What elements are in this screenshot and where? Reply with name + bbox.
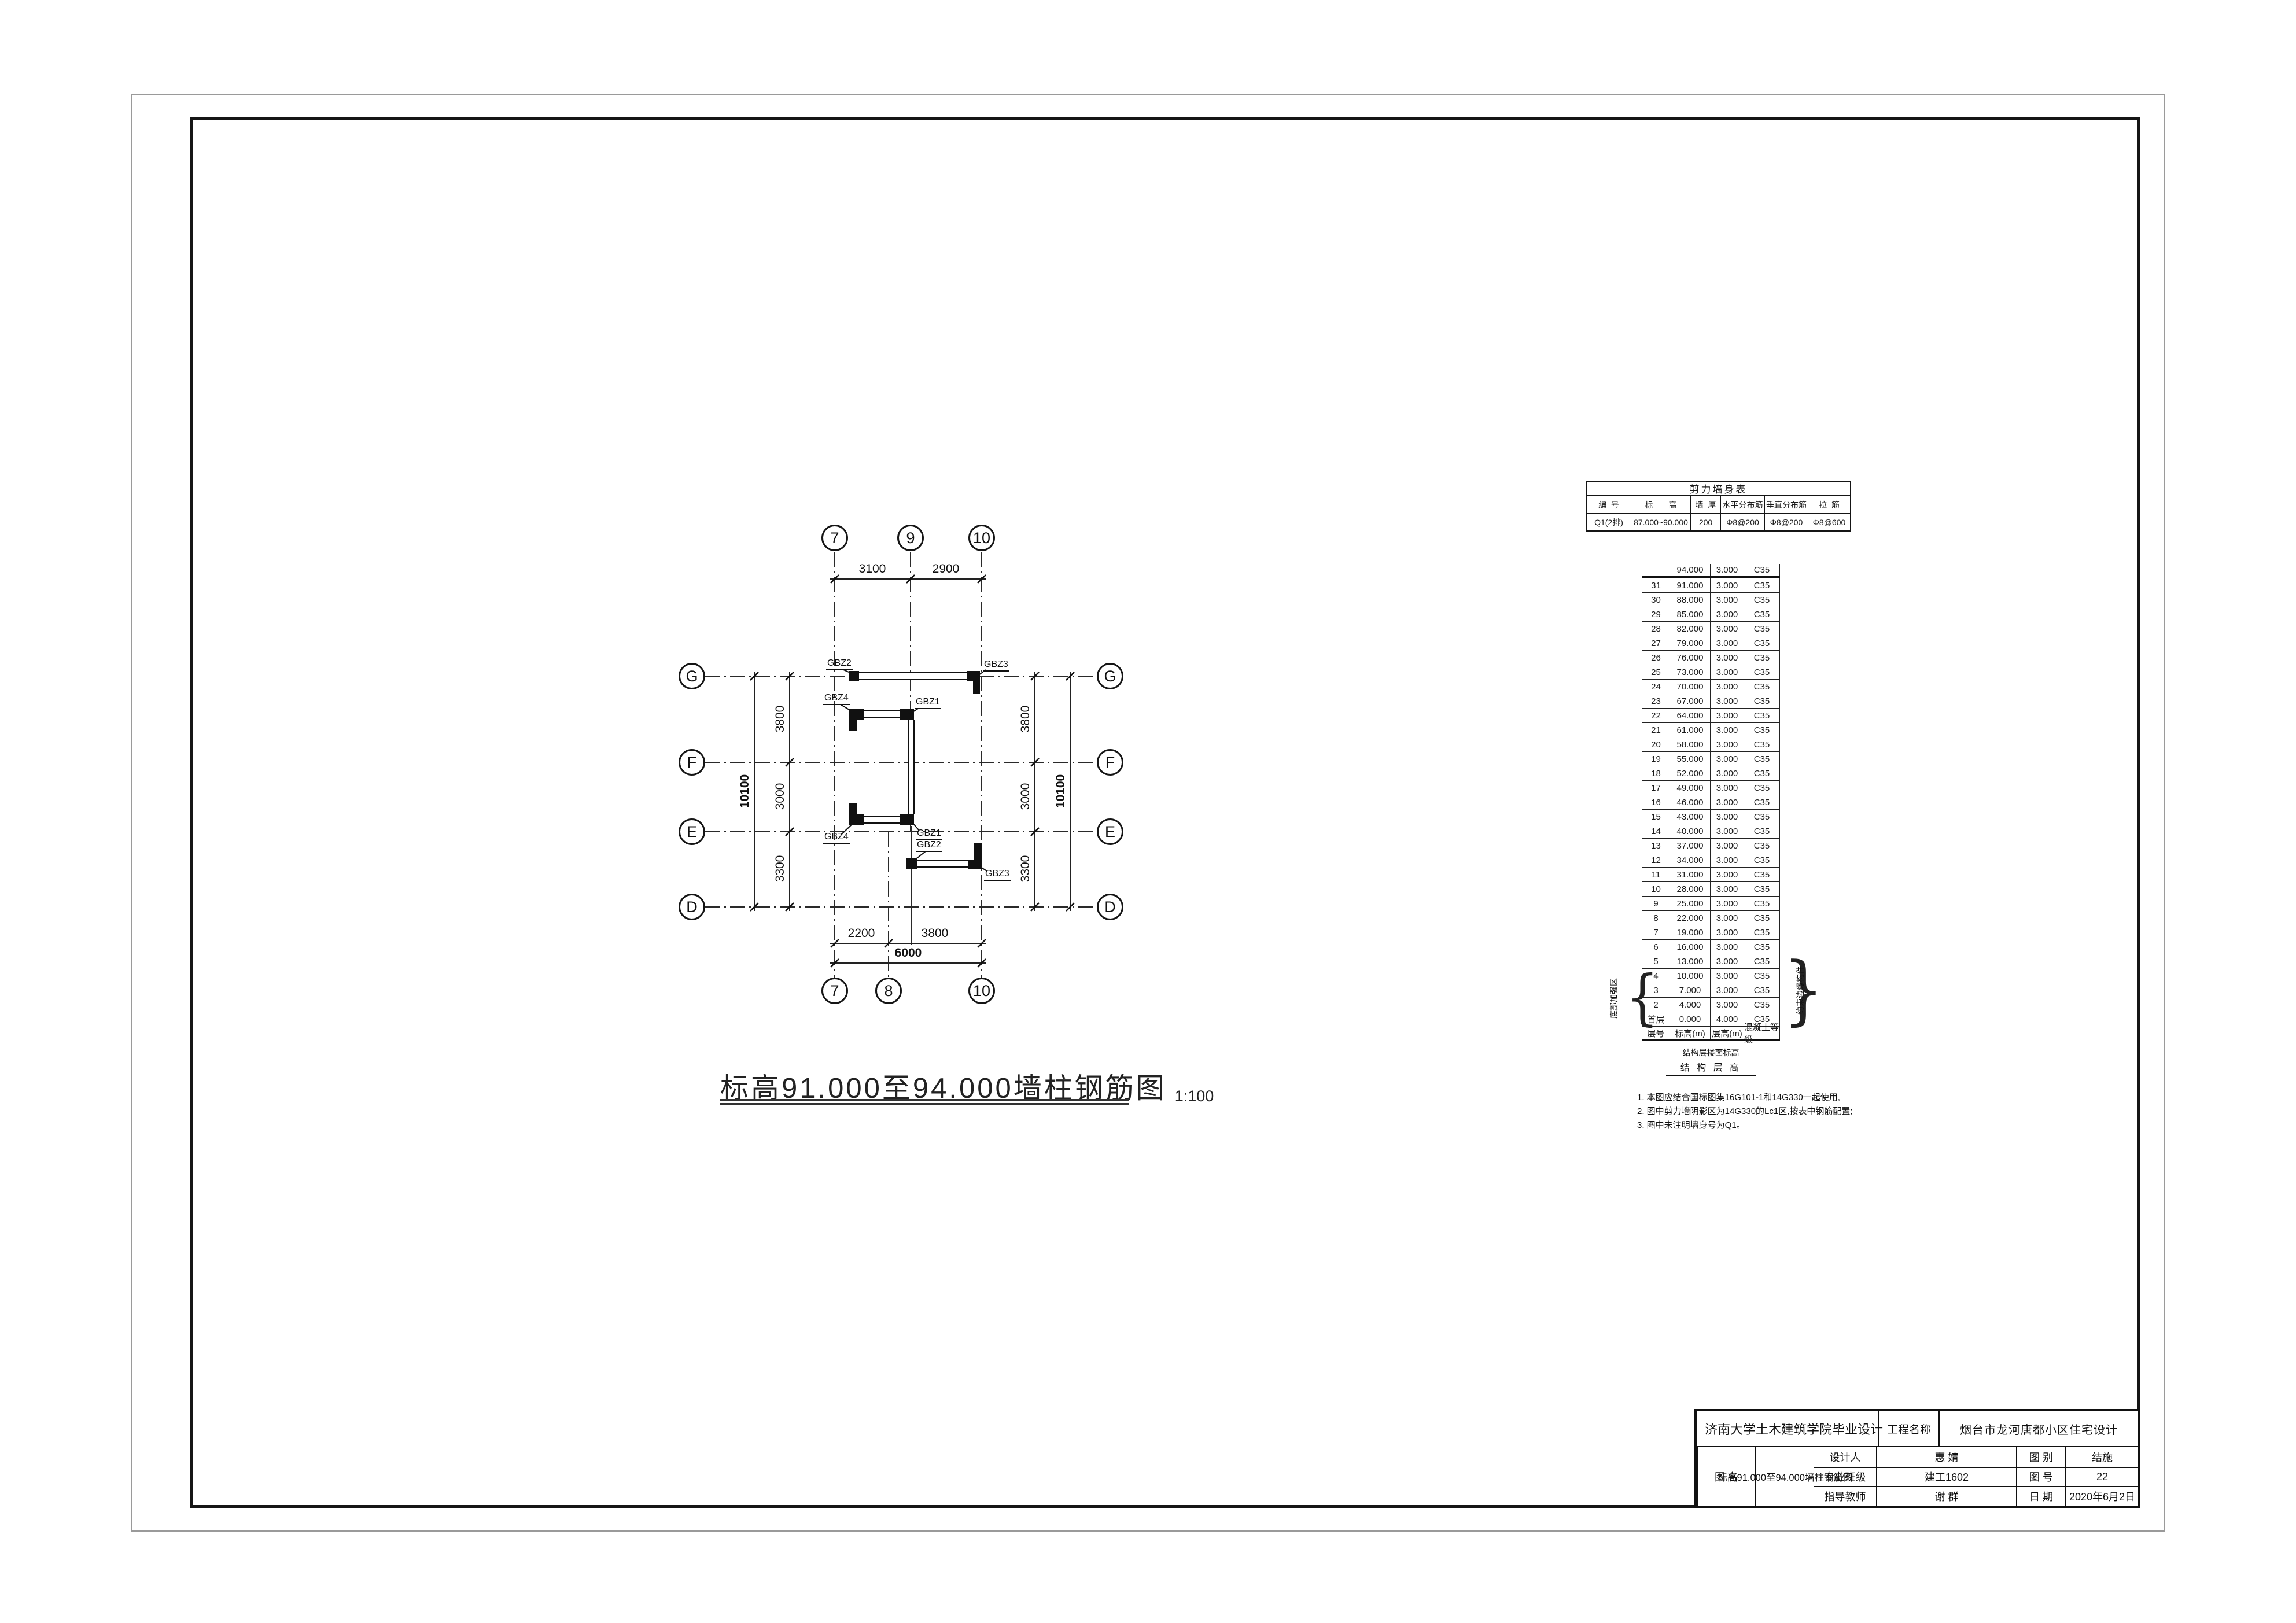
plan-title-underline-2 (720, 1103, 1129, 1105)
grid-bubble-label: 9 (906, 529, 915, 547)
floor-table-cell: C35 (1744, 969, 1780, 983)
floor-table-cell: C35 (1744, 810, 1780, 824)
advisor-label: 指导教师 (1814, 1486, 1876, 1506)
grid-bubble-label: F (1105, 754, 1115, 772)
shear-data-cell: 200 (1691, 514, 1721, 530)
advisor-value: 谢 群 (1876, 1486, 2016, 1506)
floor-table-cell: 61.000 (1670, 723, 1711, 737)
floor-table-cell: 88.000 (1670, 593, 1711, 607)
floor-table-cell: 3.000 (1711, 925, 1744, 939)
date-label: 日 期 (2016, 1486, 2065, 1506)
grid-bubble-label: F (687, 754, 697, 772)
floor-table-cell: C35 (1744, 622, 1780, 636)
floor-table-cell: C35 (1744, 781, 1780, 795)
label-confined-boundary: 约束边缘构件 (1794, 966, 1806, 1015)
grid-line-F (705, 762, 1097, 763)
shear-data-cell: Φ8@200 (1721, 514, 1765, 530)
floor-table-cell: C35 (1744, 795, 1780, 809)
shear-data-cell: Φ8@200 (1765, 514, 1808, 530)
floor-table-cell: 14 (1642, 824, 1670, 838)
floor-table-cell: 3.000 (1711, 983, 1744, 997)
floor-table-cell: 3.000 (1711, 824, 1744, 838)
shear-wall-core-top (864, 710, 900, 718)
floor-table-row: 2058.0003.000C35 (1642, 737, 1780, 752)
floor-elevation-table: 94.0003.000C353191.0003.000C353088.0003.… (1642, 564, 1780, 1041)
floor-table-cell: 10 (1642, 882, 1670, 896)
floor-table-cell: 3.000 (1711, 954, 1744, 968)
floor-table-cell: C35 (1744, 665, 1780, 679)
floor-table-cell: 7 (1642, 925, 1670, 939)
floor-table-cell: 7.000 (1670, 983, 1711, 997)
shear-header-cell: 编 号 (1587, 496, 1631, 513)
floor-table-cell: 25 (1642, 665, 1670, 679)
note-line-3: 3. 图中未注明墙身号为Q1。 (1637, 1119, 1853, 1133)
floor-table-row: 2985.0003.000C35 (1642, 607, 1780, 622)
dim-bottom-2: 3800 (922, 927, 949, 940)
label-gbz2-top: GBZ2 (826, 658, 853, 670)
floor-table-cell: 43.000 (1670, 810, 1711, 824)
floor-table-cell: 3.000 (1711, 607, 1744, 621)
wall-column-gbz3-bottom-v (974, 843, 982, 860)
dim-right-3: 3300 (1019, 855, 1033, 883)
shear-wall-core-vertical (908, 720, 915, 814)
floor-table-cell: 3.000 (1711, 636, 1744, 650)
dim-bottom-1: 2200 (848, 927, 875, 940)
floor-table-row: 1543.0003.000C35 (1642, 810, 1780, 824)
floor-table-cell: 3.000 (1711, 897, 1744, 910)
floor-table-footer-underline (1666, 1075, 1756, 1076)
wall-column-gbz3-bottom-h (968, 860, 982, 869)
floor-table-cell: C35 (1744, 954, 1780, 968)
title-block-project-name: 烟台市龙河唐都小区住宅设计 (1938, 1411, 2138, 1446)
floor-table-cell: C35 (1744, 868, 1780, 881)
floor-table-cell: 11 (1642, 868, 1670, 881)
wall-column-gbz1-top (900, 709, 914, 720)
floor-table-row: 94.0003.000C35 (1642, 564, 1780, 578)
floor-table-row: 1028.0003.000C35 (1642, 882, 1780, 897)
floor-table-cell: C35 (1744, 897, 1780, 910)
floor-table-row: 822.0003.000C35 (1642, 911, 1780, 925)
floor-table-cell: 3.000 (1711, 651, 1744, 665)
floor-table-cell: 3.000 (1711, 781, 1744, 795)
dim-right-2: 3000 (1019, 783, 1033, 810)
drawing-frame-border (190, 117, 2140, 1508)
floor-table-row: 2882.0003.000C35 (1642, 622, 1780, 636)
wall-column-gbz1-bottom (900, 814, 914, 825)
dim-line-left-total (754, 672, 755, 911)
label-gbz4-bottom: GBZ4 (823, 832, 850, 844)
grid-bubble-label: D (686, 898, 698, 916)
label-gbz1-top: GBZ1 (915, 697, 941, 709)
floor-table-row: 719.0003.000C35 (1642, 925, 1780, 940)
floor-table-cell: C35 (1744, 737, 1780, 751)
dim-line-right-total (1070, 672, 1071, 911)
floor-table-cell (1642, 564, 1670, 576)
shear-wall-table: 剪力墙身表 编 号 标 高 墙 厚 水平分布筋 垂直分布筋 拉 筋 Q1(2排)… (1586, 481, 1851, 532)
shear-data-cell: Q1(2排) (1587, 514, 1631, 530)
grid-bubble-F-right: F (1097, 749, 1123, 776)
dim-bottom-total: 6000 (895, 946, 922, 960)
grid-bubble-label: 10 (973, 529, 990, 547)
grid-bubble-E-right: E (1097, 818, 1123, 845)
floor-table-cell: 46.000 (1670, 795, 1711, 809)
floor-table-row: 2264.0003.000C35 (1642, 709, 1780, 723)
floor-table-cell: 52.000 (1670, 766, 1711, 780)
grid-line-D (705, 906, 1097, 908)
dim-top-1: 3100 (859, 562, 886, 576)
floor-table-cell: 70.000 (1670, 680, 1711, 694)
shear-wall-E (917, 860, 968, 868)
floor-table-row: 513.0003.000C35 (1642, 954, 1780, 969)
floor-table-row: 925.0003.000C35 (1642, 897, 1780, 911)
floor-table-cell: 22.000 (1670, 911, 1711, 925)
dim-line-bottom-total (830, 962, 986, 964)
grid-bubble-7-bottom: 7 (821, 978, 848, 1004)
plan-scale: 1:100 (1175, 1087, 1214, 1106)
label-gbz4-top: GBZ4 (823, 693, 850, 705)
label-gbz3-top: GBZ3 (983, 659, 1009, 672)
floor-table-cell: 3.000 (1711, 752, 1744, 766)
drawing-name-value: 标高91.000至94.000墙柱钢筋图 (1755, 1447, 1814, 1506)
floor-table-row: 1337.0003.000C35 (1642, 839, 1780, 853)
floor-table-cell: C35 (1744, 694, 1780, 708)
grid-bubble-label: E (687, 823, 697, 841)
floor-table-cell: 3.000 (1711, 911, 1744, 925)
floor-table-cell: 31.000 (1670, 868, 1711, 881)
shear-data-cell: Φ8@600 (1808, 514, 1850, 530)
floor-table-cell: 73.000 (1670, 665, 1711, 679)
dim-top-2: 2900 (933, 562, 960, 576)
wall-column-gbz3-top-h (967, 671, 980, 681)
dim-left-1: 3800 (773, 706, 787, 733)
grid-line-8 (888, 832, 889, 978)
floor-table-cell: 3.000 (1711, 766, 1744, 780)
floor-table-cell: 4.000 (1711, 1012, 1744, 1026)
floor-table-cell: C35 (1744, 853, 1780, 867)
label-gbz1-bottom: GBZ1 (916, 828, 942, 840)
class-label: 专业班级 (1814, 1467, 1876, 1486)
floor-table-cell: 94.000 (1670, 564, 1711, 576)
floor-table-cell: 3.000 (1711, 868, 1744, 881)
floor-table-cell: 25.000 (1670, 897, 1711, 910)
floor-table-row: 1955.0003.000C35 (1642, 752, 1780, 766)
floor-table-cell: C35 (1744, 824, 1780, 838)
floor-table-cell: C35 (1744, 752, 1780, 766)
floor-table-cell: 15 (1642, 810, 1670, 824)
floor-table-body: 94.0003.000C353191.0003.000C353088.0003.… (1642, 564, 1780, 1027)
floor-table-cell: C35 (1744, 925, 1780, 939)
floor-table-cell: 21 (1642, 723, 1670, 737)
floor-table-cell: 40.000 (1670, 824, 1711, 838)
floor-table-cell: 28.000 (1670, 882, 1711, 896)
shear-header-cell: 水平分布筋 (1721, 496, 1765, 513)
shear-header-cell: 垂直分布筋 (1765, 496, 1808, 513)
label-bottom-strengthen-zone: 底部加强区 (1608, 978, 1620, 1019)
floor-table-cell: 3.000 (1711, 680, 1744, 694)
floor-table-row: 1440.0003.000C35 (1642, 824, 1780, 839)
floor-table-cell: C35 (1744, 839, 1780, 853)
floor-table-cell: 37.000 (1670, 839, 1711, 853)
floor-table-header-cell: 标高(m) (1670, 1027, 1711, 1039)
grid-bubble-G-right: G (1097, 663, 1123, 689)
label-gbz2-bottom: GBZ2 (916, 840, 942, 852)
floor-table-cell: 0.000 (1670, 1012, 1711, 1026)
shear-header-cell: 标 高 (1631, 496, 1691, 513)
grid-bubble-8-bottom: 8 (875, 978, 902, 1004)
grid-bubble-10-top: 10 (968, 525, 995, 551)
floor-table-cell: 16 (1642, 795, 1670, 809)
floor-table-cell: 3.000 (1711, 578, 1744, 592)
designer-value: 惠 婧 (1876, 1447, 2016, 1467)
plan-title-underline-1 (720, 1099, 1129, 1101)
shear-wall-table-header-row: 编 号 标 高 墙 厚 水平分布筋 垂直分布筋 拉 筋 (1587, 496, 1850, 514)
dim-line-right-sub (1034, 672, 1035, 911)
floor-table-cell: 22 (1642, 709, 1670, 722)
floor-table-row: 1749.0003.000C35 (1642, 781, 1780, 795)
floor-table-cell: 31 (1642, 578, 1670, 592)
floor-table-cell: C35 (1744, 911, 1780, 925)
floor-table-cell: 3.000 (1711, 810, 1744, 824)
floor-table-cell: 85.000 (1670, 607, 1711, 621)
floor-table-cell: C35 (1744, 680, 1780, 694)
grid-bubble-D-right: D (1097, 894, 1123, 920)
grid-bubble-9-top: 9 (897, 525, 924, 551)
note-line-1: 1. 本图应结合国标图集16G101-1和14G330一起使用, (1637, 1091, 1853, 1105)
floor-table-cell: 4.000 (1670, 998, 1711, 1012)
floor-table-cell: 20 (1642, 737, 1670, 751)
floor-table-row: 2470.0003.000C35 (1642, 680, 1780, 694)
floor-table-cell: 3.000 (1711, 694, 1744, 708)
floor-table-cell: C35 (1744, 998, 1780, 1012)
floor-table-cell: 3.000 (1711, 940, 1744, 954)
shear-wall-table-title: 剪力墙身表 (1587, 482, 1850, 496)
floor-table-row: 2161.0003.000C35 (1642, 723, 1780, 737)
floor-table-row: 37.0003.000C35 (1642, 983, 1780, 998)
floor-table-cell: 12 (1642, 853, 1670, 867)
date-value: 2020年6月2日 (2065, 1486, 2138, 1506)
grid-bubble-D-left: D (679, 894, 705, 920)
floor-table-row: 2676.0003.000C35 (1642, 651, 1780, 665)
grid-bubble-label: 10 (973, 982, 990, 1000)
wall-column-gbz2-top (849, 671, 859, 681)
floor-table-cell: 58.000 (1670, 737, 1711, 751)
shear-header-cell: 拉 筋 (1808, 496, 1850, 513)
brace-bottom-strengthen-zone: { (1626, 967, 1659, 1027)
dim-left-2: 3000 (773, 783, 787, 810)
floor-table-cell: 27 (1642, 636, 1670, 650)
floor-table-cell: 3.000 (1711, 737, 1744, 751)
floor-table-cell: 16.000 (1670, 940, 1711, 954)
floor-table-row: 410.0003.000C35 (1642, 969, 1780, 983)
floor-table-cell: C35 (1744, 766, 1780, 780)
floor-table-cell: C35 (1744, 723, 1780, 737)
floor-table-cell: 30 (1642, 593, 1670, 607)
floor-table-cell: C35 (1744, 593, 1780, 607)
dim-line-bottom-sub (830, 943, 986, 944)
grid-bubble-label: G (686, 667, 698, 685)
floor-table-header-cell: 混凝土等级 (1744, 1027, 1780, 1039)
extension-line-9 (911, 826, 912, 945)
shear-data-cell: 87.000~90.000 (1631, 514, 1691, 530)
floor-table-cell: C35 (1744, 636, 1780, 650)
general-notes: 1. 本图应结合国标图集16G101-1和14G330一起使用, 2. 图中剪力… (1637, 1091, 1853, 1133)
dim-right-1: 3800 (1019, 706, 1033, 733)
category-value: 结施 (2065, 1447, 2138, 1467)
floor-table-row: 2779.0003.000C35 (1642, 636, 1780, 651)
floor-table-cell: 3.000 (1711, 853, 1744, 867)
floor-table-cell: 49.000 (1670, 781, 1711, 795)
wall-column-gbz4-top-h (849, 709, 864, 720)
shear-wall-table-data-row: Q1(2排) 87.000~90.000 200 Φ8@200 Φ8@200 Φ… (1587, 514, 1850, 530)
floor-table-cell: C35 (1744, 607, 1780, 621)
shear-header-cell: 墙 厚 (1691, 496, 1721, 513)
floor-table-row: 24.0003.000C35 (1642, 998, 1780, 1012)
wall-column-gbz4-bottom-v (849, 803, 857, 814)
floor-table-row: 2367.0003.000C35 (1642, 694, 1780, 709)
grid-bubble-label: D (1104, 898, 1116, 916)
floor-table-cell: 13 (1642, 839, 1670, 853)
floor-table-cell: 18 (1642, 766, 1670, 780)
floor-table-cell: C35 (1744, 564, 1780, 576)
number-label: 图 号 (2016, 1467, 2065, 1486)
shear-wall-core-bottom (864, 816, 900, 824)
grid-line-10 (981, 552, 982, 978)
grid-line-7 (834, 552, 835, 978)
label-gbz3-bottom: GBZ3 (984, 869, 1011, 881)
floor-table-cell: 3.000 (1711, 564, 1744, 576)
floor-table-cell: 9 (1642, 897, 1670, 910)
grid-bubble-label: 7 (830, 529, 839, 547)
wall-column-gbz4-top-v (849, 720, 857, 731)
floor-table-cell: C35 (1744, 578, 1780, 592)
floor-table-cell: 55.000 (1670, 752, 1711, 766)
class-value: 建工1602 (1876, 1467, 2016, 1486)
grid-bubble-label: 8 (884, 982, 893, 1000)
floor-table-cell: 6 (1642, 940, 1670, 954)
floor-table-cell: 28 (1642, 622, 1670, 636)
floor-table-cell: 79.000 (1670, 636, 1711, 650)
floor-table-row: 2573.0003.000C35 (1642, 665, 1780, 680)
floor-table-cell: 10.000 (1670, 969, 1711, 983)
floor-table-cell: C35 (1744, 940, 1780, 954)
floor-table-cell: 76.000 (1670, 651, 1711, 665)
floor-table-cell: 64.000 (1670, 709, 1711, 722)
floor-table-cell: 67.000 (1670, 694, 1711, 708)
floor-table-cell: 3.000 (1711, 593, 1744, 607)
floor-table-cell: 3.000 (1711, 882, 1744, 896)
dim-right-total: 10100 (1054, 774, 1068, 808)
grid-bubble-label: 7 (830, 982, 839, 1000)
title-block-project-label: 工程名称 (1878, 1411, 1938, 1446)
wall-column-gbz3-top-v (973, 681, 980, 694)
dim-line-left-sub (789, 672, 790, 911)
title-block-grid: 设计人 惠 婧 图 名 标高91.000至94.000墙柱钢筋图 图 别 结施 … (1697, 1447, 2138, 1506)
floor-table-cell: 3.000 (1711, 709, 1744, 722)
floor-table-cell: 19.000 (1670, 925, 1711, 939)
floor-table-cell: 3.000 (1711, 723, 1744, 737)
floor-table-cell: 19 (1642, 752, 1670, 766)
designer-label: 设计人 (1814, 1447, 1876, 1467)
grid-bubble-10-bottom: 10 (968, 978, 995, 1004)
title-block-school: 济南大学土木建筑学院毕业设计 (1697, 1411, 1878, 1446)
grid-bubble-7-top: 7 (821, 525, 848, 551)
grid-bubble-label: E (1105, 823, 1115, 841)
floor-table-row: 1646.0003.000C35 (1642, 795, 1780, 810)
floor-table-cell: C35 (1744, 651, 1780, 665)
floor-table-cell: 3.000 (1711, 795, 1744, 809)
grid-bubble-G-left: G (679, 663, 705, 689)
floor-table-footer-1: 结构层楼面标高 (1642, 1047, 1780, 1058)
floor-table-row: 1131.0003.000C35 (1642, 868, 1780, 882)
wall-column-gbz2-bottom (906, 858, 917, 869)
floor-table-cell: 8 (1642, 911, 1670, 925)
floor-table-cell: 3.000 (1711, 969, 1744, 983)
shear-wall-G (859, 672, 967, 680)
floor-table-row: 3088.0003.000C35 (1642, 593, 1780, 607)
grid-line-E (705, 831, 1097, 832)
dim-left-total: 10100 (738, 774, 752, 808)
floor-table-cell: C35 (1744, 882, 1780, 896)
floor-table-footer-2: 结 构 层 高 (1642, 1060, 1780, 1074)
number-value: 22 (2065, 1467, 2138, 1486)
floor-table-cell: 17 (1642, 781, 1670, 795)
floor-table-header-cell: 层高(m) (1711, 1027, 1744, 1039)
floor-table-cell: 23 (1642, 694, 1670, 708)
floor-table-cell: 3.000 (1711, 622, 1744, 636)
grid-bubble-label: G (1104, 667, 1116, 685)
floor-table-cell: 34.000 (1670, 853, 1711, 867)
floor-table-cell: 3.000 (1711, 998, 1744, 1012)
floor-table-row: 3191.0003.000C35 (1642, 578, 1780, 593)
floor-table-cell: 13.000 (1670, 954, 1711, 968)
note-line-2: 2. 图中剪力墙阴影区为14G330的Lc1区,按表中钢筋配置; (1637, 1105, 1853, 1119)
floor-table-cell: 26 (1642, 651, 1670, 665)
floor-table-header-row: 层号标高(m)层高(m)混凝土等级 (1642, 1027, 1780, 1041)
grid-bubble-E-left: E (679, 818, 705, 845)
grid-bubble-F-left: F (679, 749, 705, 776)
floor-table-cell: 3.000 (1711, 665, 1744, 679)
floor-table-cell: C35 (1744, 709, 1780, 722)
floor-table-cell: 3.000 (1711, 839, 1744, 853)
floor-table-cell: 82.000 (1670, 622, 1711, 636)
dim-line-top (830, 578, 986, 580)
dim-left-3: 3300 (773, 855, 787, 883)
title-block-top-row: 济南大学土木建筑学院毕业设计 工程名称 烟台市龙河唐都小区住宅设计 (1697, 1411, 2138, 1447)
floor-table-cell: 91.000 (1670, 578, 1711, 592)
floor-table-cell: 24 (1642, 680, 1670, 694)
floor-table-row: 1852.0003.000C35 (1642, 766, 1780, 781)
floor-table-row: 616.0003.000C35 (1642, 940, 1780, 954)
floor-table-cell: 29 (1642, 607, 1670, 621)
category-label: 图 别 (2016, 1447, 2065, 1467)
floor-table-cell: C35 (1744, 983, 1780, 997)
wall-column-gbz4-bottom-h (849, 814, 864, 825)
title-block: 济南大学土木建筑学院毕业设计 工程名称 烟台市龙河唐都小区住宅设计 设计人 惠 … (1694, 1409, 2140, 1508)
floor-table-row: 1234.0003.000C35 (1642, 853, 1780, 868)
